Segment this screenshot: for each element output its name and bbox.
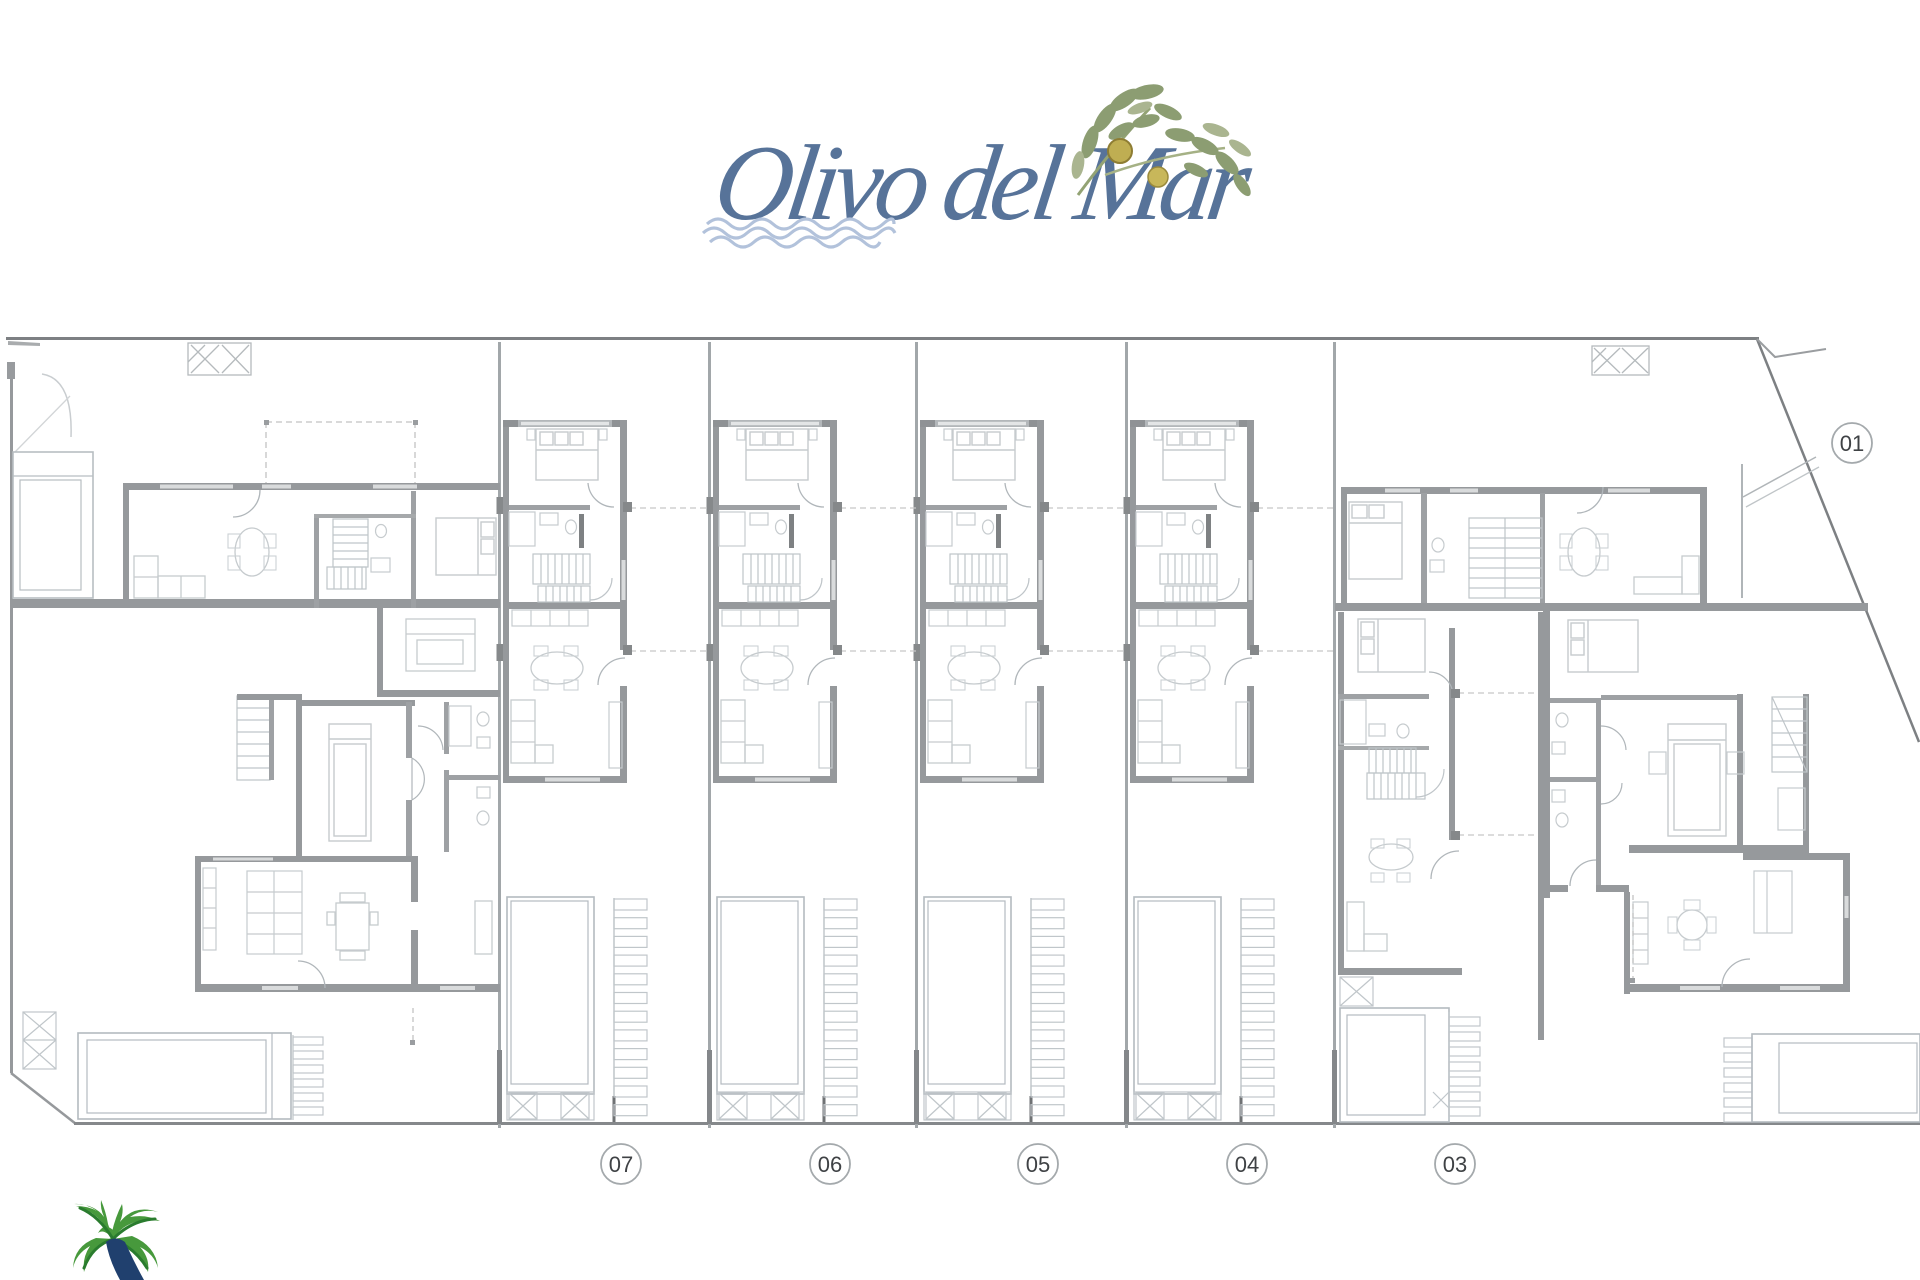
svg-text:06: 06 [818,1152,842,1177]
svg-text:07: 07 [609,1152,633,1177]
svg-text:04: 04 [1235,1152,1259,1177]
svg-text:01: 01 [1840,431,1864,456]
svg-text:05: 05 [1026,1152,1050,1177]
svg-text:03: 03 [1443,1152,1467,1177]
svg-text:Olivo del Mar: Olivo del Mar [708,123,1260,242]
